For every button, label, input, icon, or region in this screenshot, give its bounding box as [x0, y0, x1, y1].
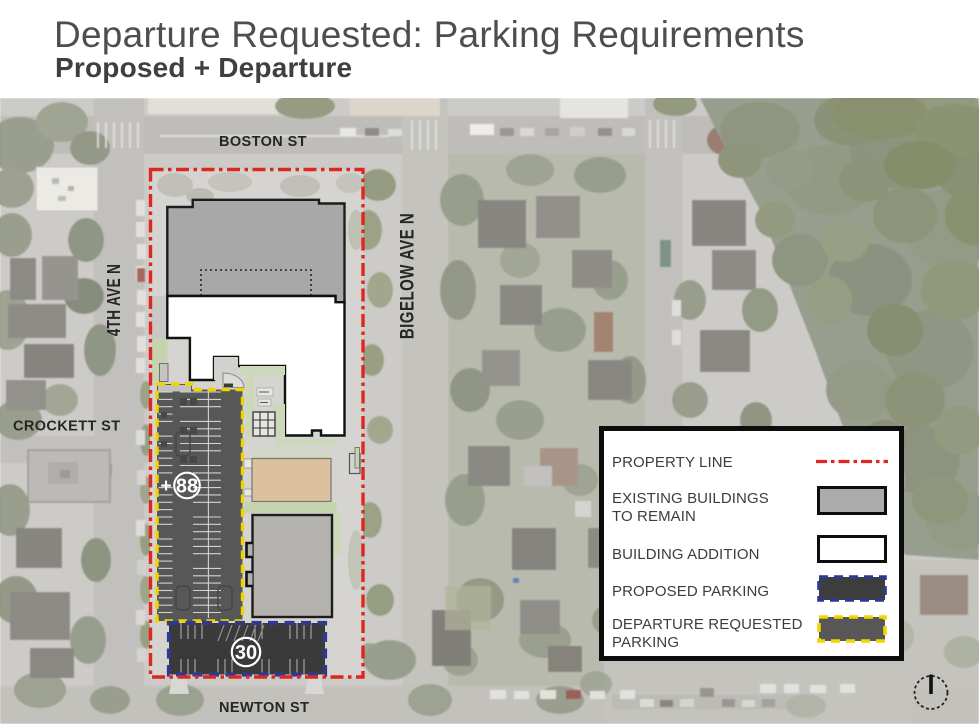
svg-text:NEWTON ST: NEWTON ST — [219, 700, 309, 716]
svg-text:BUILDING ADDITION: BUILDING ADDITION — [612, 546, 760, 563]
svg-text:30: 30 — [235, 642, 257, 664]
svg-text:PROPOSED PARKING: PROPOSED PARKING — [612, 583, 769, 600]
svg-text:DEPARTURE REQUESTED: DEPARTURE REQUESTED — [612, 616, 803, 633]
svg-text:88: 88 — [176, 476, 198, 498]
svg-text:BIGELOW AVE N: BIGELOW AVE N — [396, 213, 418, 339]
svg-text:PARKING: PARKING — [612, 634, 679, 651]
svg-text:BOSTON ST: BOSTON ST — [219, 134, 307, 150]
svg-text:4TH AVE N: 4TH AVE N — [104, 264, 124, 337]
svg-text:+: + — [160, 476, 171, 497]
svg-text:PROPERTY LINE: PROPERTY LINE — [612, 454, 733, 471]
svg-text:TO REMAIN: TO REMAIN — [612, 508, 696, 525]
svg-text:EXISTING BUILDINGS: EXISTING BUILDINGS — [612, 490, 769, 507]
svg-text:CROCKETT ST: CROCKETT ST — [13, 419, 121, 435]
